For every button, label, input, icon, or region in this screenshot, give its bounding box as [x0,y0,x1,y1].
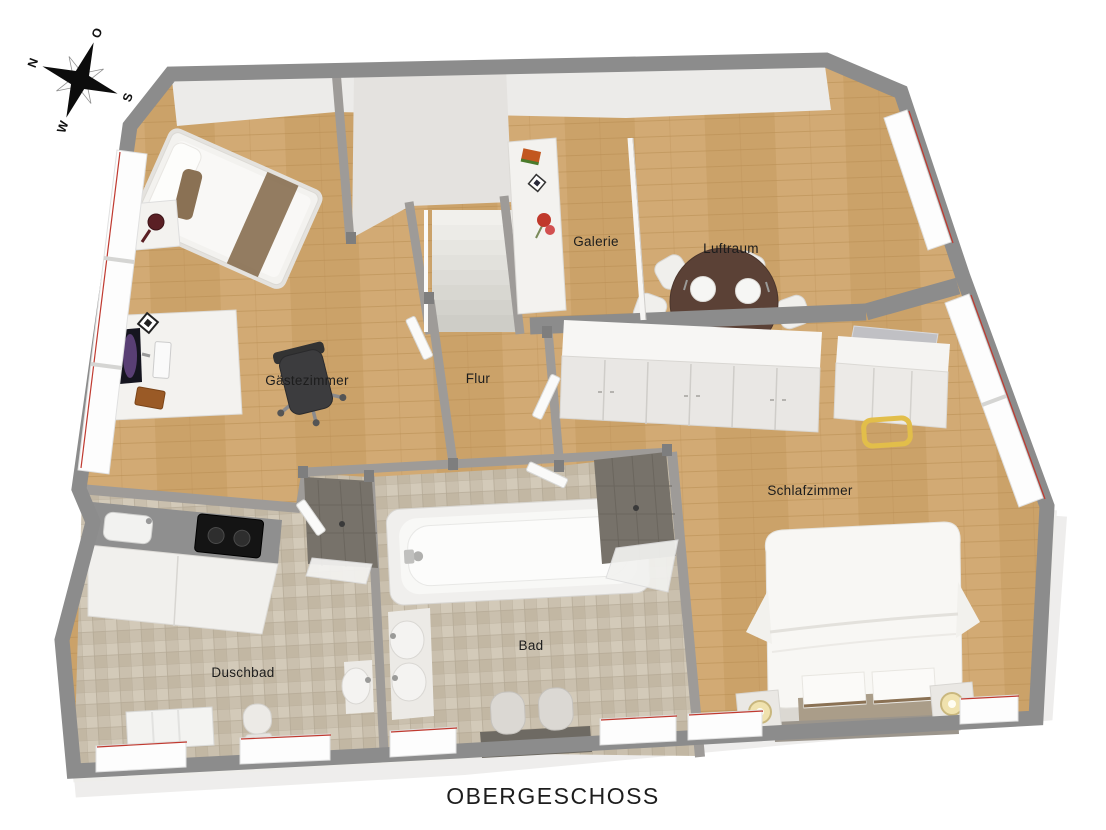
compass-south-label: S [120,91,136,104]
window-bottom-2 [240,734,331,764]
floor-plan: N O S W [0,0,1106,830]
room-label-luftraum: Luftraum [703,241,759,256]
window-bottom-1 [96,741,187,772]
kitchen-sink [103,512,154,545]
window-bottom-4 [600,715,677,745]
room-label-duschbad: Duschbad [211,665,274,680]
shower-drain [633,505,639,511]
room-label-galerie: Galerie [573,234,619,249]
bad-double-sink [388,608,434,720]
wardrobe [560,320,822,432]
window-bottom-5 [688,710,763,740]
floor-title: OBERGESCHOSS [446,783,660,809]
room-label-flur: Flur [466,371,491,386]
plate [736,279,761,304]
room-label-gaestezimmer: Gästezimmer [265,373,349,388]
toilet [490,691,526,735]
window-bottom-6 [960,695,1019,724]
table-lamp [148,214,164,230]
compass-east-label: O [89,26,106,40]
vanity-table [834,326,950,428]
window-bottom-3 [390,727,457,757]
bed-pillow-right [872,668,936,704]
room-label-schlafzimmer: Schlafzimmer [767,483,853,498]
compass-west-label: W [54,119,71,135]
duschbad-sink [342,660,374,714]
kitchenette-counter [88,502,282,634]
shower-drain [339,521,345,527]
compass-north-label: N [25,56,41,69]
compass-main-star [29,29,132,132]
keyboard [153,341,171,378]
gallery-sideboard [508,138,566,314]
cooktop [194,514,264,559]
bed-pillow-left [802,672,866,708]
floor-plan-page: N O S W [0,0,1106,830]
room-label-bad: Bad [519,638,544,653]
bidet [538,687,574,731]
plate [691,277,716,302]
